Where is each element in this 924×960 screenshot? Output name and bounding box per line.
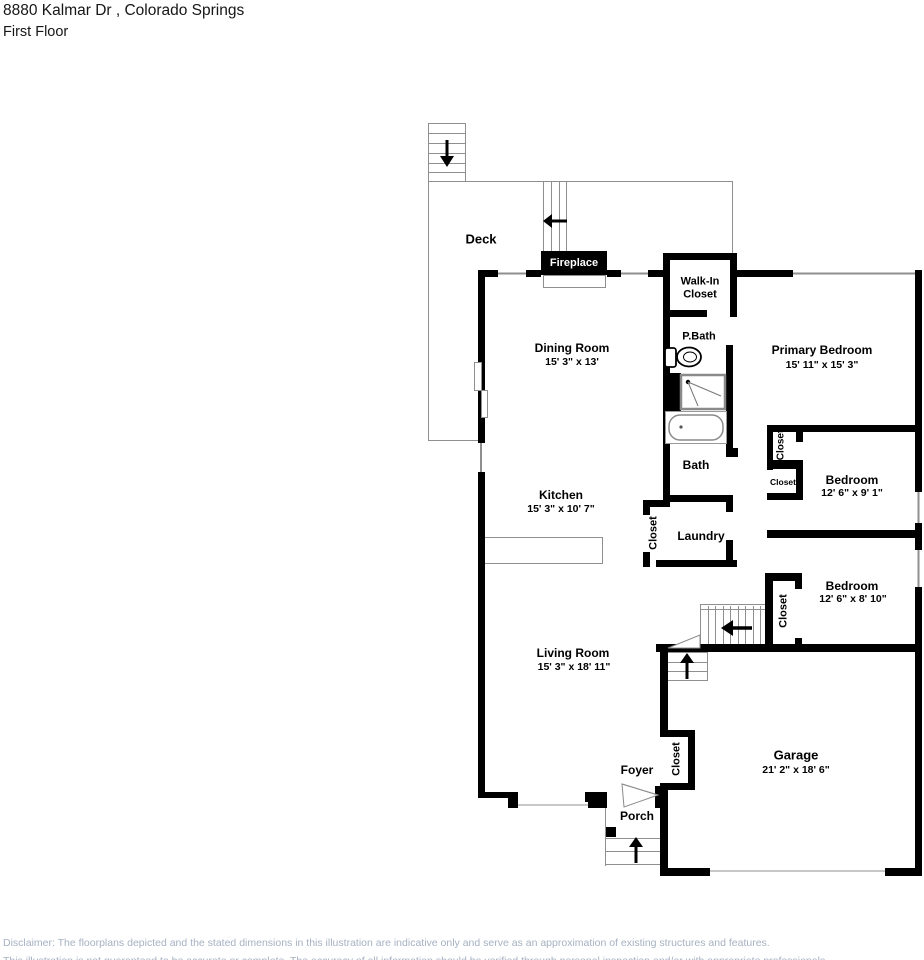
wall-segment [607,270,621,277]
window-marker [477,443,485,472]
wall-segment [585,792,607,808]
wall-segment [726,502,733,512]
fireplace-box: Fireplace [541,251,607,275]
closet-label-bedroom1-lower: Closet [770,478,796,488]
walk-in-closet-label: Walk-In Closet [671,275,729,300]
closet-label-pantry: Closet [648,516,661,550]
sliding-door-panel [481,390,488,418]
outline-box [482,537,603,564]
garage-dims: 21' 2" x 18' 6" [762,764,830,776]
arrow-up-entry-icon [679,652,695,682]
shower-icon [679,372,728,412]
wall-segment [643,552,650,567]
fireplace-label: Fireplace [550,257,598,269]
kitchen-dims: 15' 3" x 10' 7" [527,503,595,515]
bathtub-icon [664,409,729,447]
closet-label-bedroom2: Closet [778,594,791,628]
living-room-dims: 15' 3" x 18' 11" [538,661,611,673]
wall-segment [767,425,920,432]
arrow-up-porch-icon [628,836,644,866]
wall-segment [660,652,668,736]
floor-plan-line [700,604,765,605]
floor-plan-line [760,606,761,646]
kitchen-label: Kitchen [539,489,583,503]
wall-segment [688,730,695,790]
door-swing-garage-icon [664,630,704,650]
primary-bath-label: P.Bath [682,331,715,344]
floor-plan-line [732,181,733,253]
wall-segment [663,253,737,260]
wall-segment [606,827,616,837]
wall-segment [526,270,541,277]
wall-segment [915,587,922,875]
wall-segment [730,253,737,317]
window-marker [621,270,648,277]
disclaimer-line-2: This illustration is not guaranteed to b… [3,955,828,960]
wall-segment [478,273,485,798]
door-swing-front-icon [616,776,662,810]
wall-segment [796,430,803,442]
window-marker [498,270,526,277]
wall-segment [795,573,802,589]
bedroom-2-label: Bedroom [826,580,879,594]
window-marker [710,868,885,874]
bedroom-2-dims: 12' 6" x 8' 10" [819,593,887,605]
closet-label-bedroom1-upper: Closet [775,430,787,461]
floor-plan-page: 8880 Kalmar Dr , Colorado Springs First … [0,0,924,960]
porch-label: Porch [620,810,654,824]
garage-label: Garage [774,749,819,764]
bedroom-1-label: Bedroom [826,474,879,488]
wall-segment [508,792,518,808]
window-marker [915,492,922,523]
toilet-icon [663,343,705,373]
wall-segment [767,493,803,500]
primary-bedroom-label: Primary Bedroom [772,344,873,358]
wall-segment [767,530,920,538]
floor-plan-line [428,181,733,182]
outline-box [543,275,606,288]
floor-plan-line [715,606,716,646]
address-title: 8880 Kalmar Dr , Colorado Springs [3,2,244,20]
wall-segment [726,448,738,457]
wall-segment [648,270,663,277]
wall-segment [885,868,922,876]
dining-room-label: Dining Room [535,342,610,356]
floor-plan-line [428,181,429,440]
floor-plan-line [428,133,466,134]
floor-plan-line [708,606,709,646]
window-marker [518,802,588,808]
wall-segment [643,500,650,515]
primary-bedroom-dims: 15' 11" x 15' 3" [786,359,859,371]
floor-label: First Floor [3,24,68,40]
closet-label-foyer: Closet [671,742,684,776]
bedroom-1-dims: 12' 6" x 9' 1" [821,487,883,499]
floor-plan-line [428,440,479,441]
window-marker [915,550,922,587]
window-marker [793,270,915,277]
wall-segment [660,868,710,876]
wall-segment [765,573,773,650]
deck-label: Deck [465,233,496,248]
wall-segment [663,253,670,317]
arrow-left-stairs-icon [720,619,754,637]
dining-room-dims: 15' 3" x 13' [545,356,599,368]
wall-segment [663,495,733,502]
floor-plan-line [428,172,466,173]
arrow-down-icon [438,138,456,168]
bath-label: Bath [683,459,710,473]
arrow-left-deck-icon [541,212,569,230]
living-room-label: Living Room [537,647,610,661]
wall-segment [663,310,707,317]
floor-plan-line [700,609,765,610]
laundry-label: Laundry [677,530,724,544]
sliding-door-panel [474,362,482,391]
wall-segment [915,270,922,492]
wall-segment [737,270,793,277]
wall-segment [656,560,737,567]
disclaimer-line-1: Disclaimer: The floorplans depicted and … [3,937,770,949]
